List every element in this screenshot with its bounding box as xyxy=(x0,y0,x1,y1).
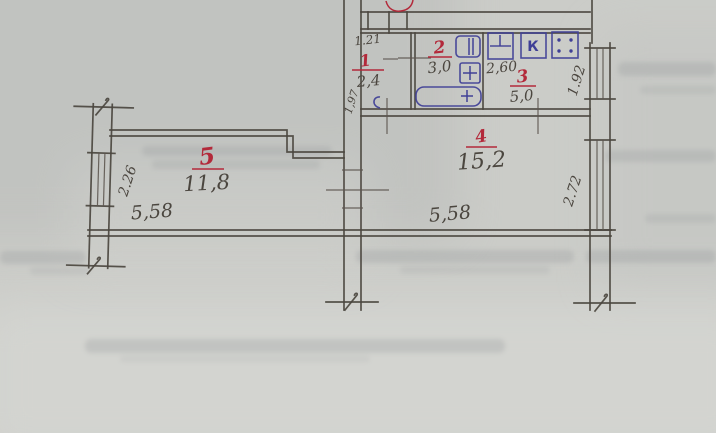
room-2-number: 2 xyxy=(432,37,447,58)
dim-bottom-span-left: 5,58 xyxy=(130,200,174,225)
room-1-area: 2,4 xyxy=(355,71,381,91)
boiler-letter: К xyxy=(527,39,539,55)
dim-kitchen-top: 2,60 xyxy=(484,59,518,78)
dim-hall-top: 1.21 xyxy=(354,32,382,49)
room-4-area: 15,2 xyxy=(456,147,507,175)
scanned-floor-plan-page: К 1.21 1 2,4 1,97 2 3,0 2,60 3 5,0 1.92 xyxy=(0,0,716,433)
room-3-area: 5,0 xyxy=(509,86,535,106)
room-2-area: 3,0 xyxy=(427,57,453,77)
paper-shade xyxy=(0,300,716,433)
paper-background xyxy=(0,0,716,433)
room-3-number: 3 xyxy=(516,66,530,87)
floor-plan-drawing: К 1.21 1 2,4 1,97 2 3,0 2,60 3 5,0 1.92 xyxy=(0,0,716,433)
room-5-area: 11,8 xyxy=(183,170,231,196)
room-5-number: 5 xyxy=(197,142,216,171)
dim-bottom-span-right: 5,58 xyxy=(428,201,472,227)
